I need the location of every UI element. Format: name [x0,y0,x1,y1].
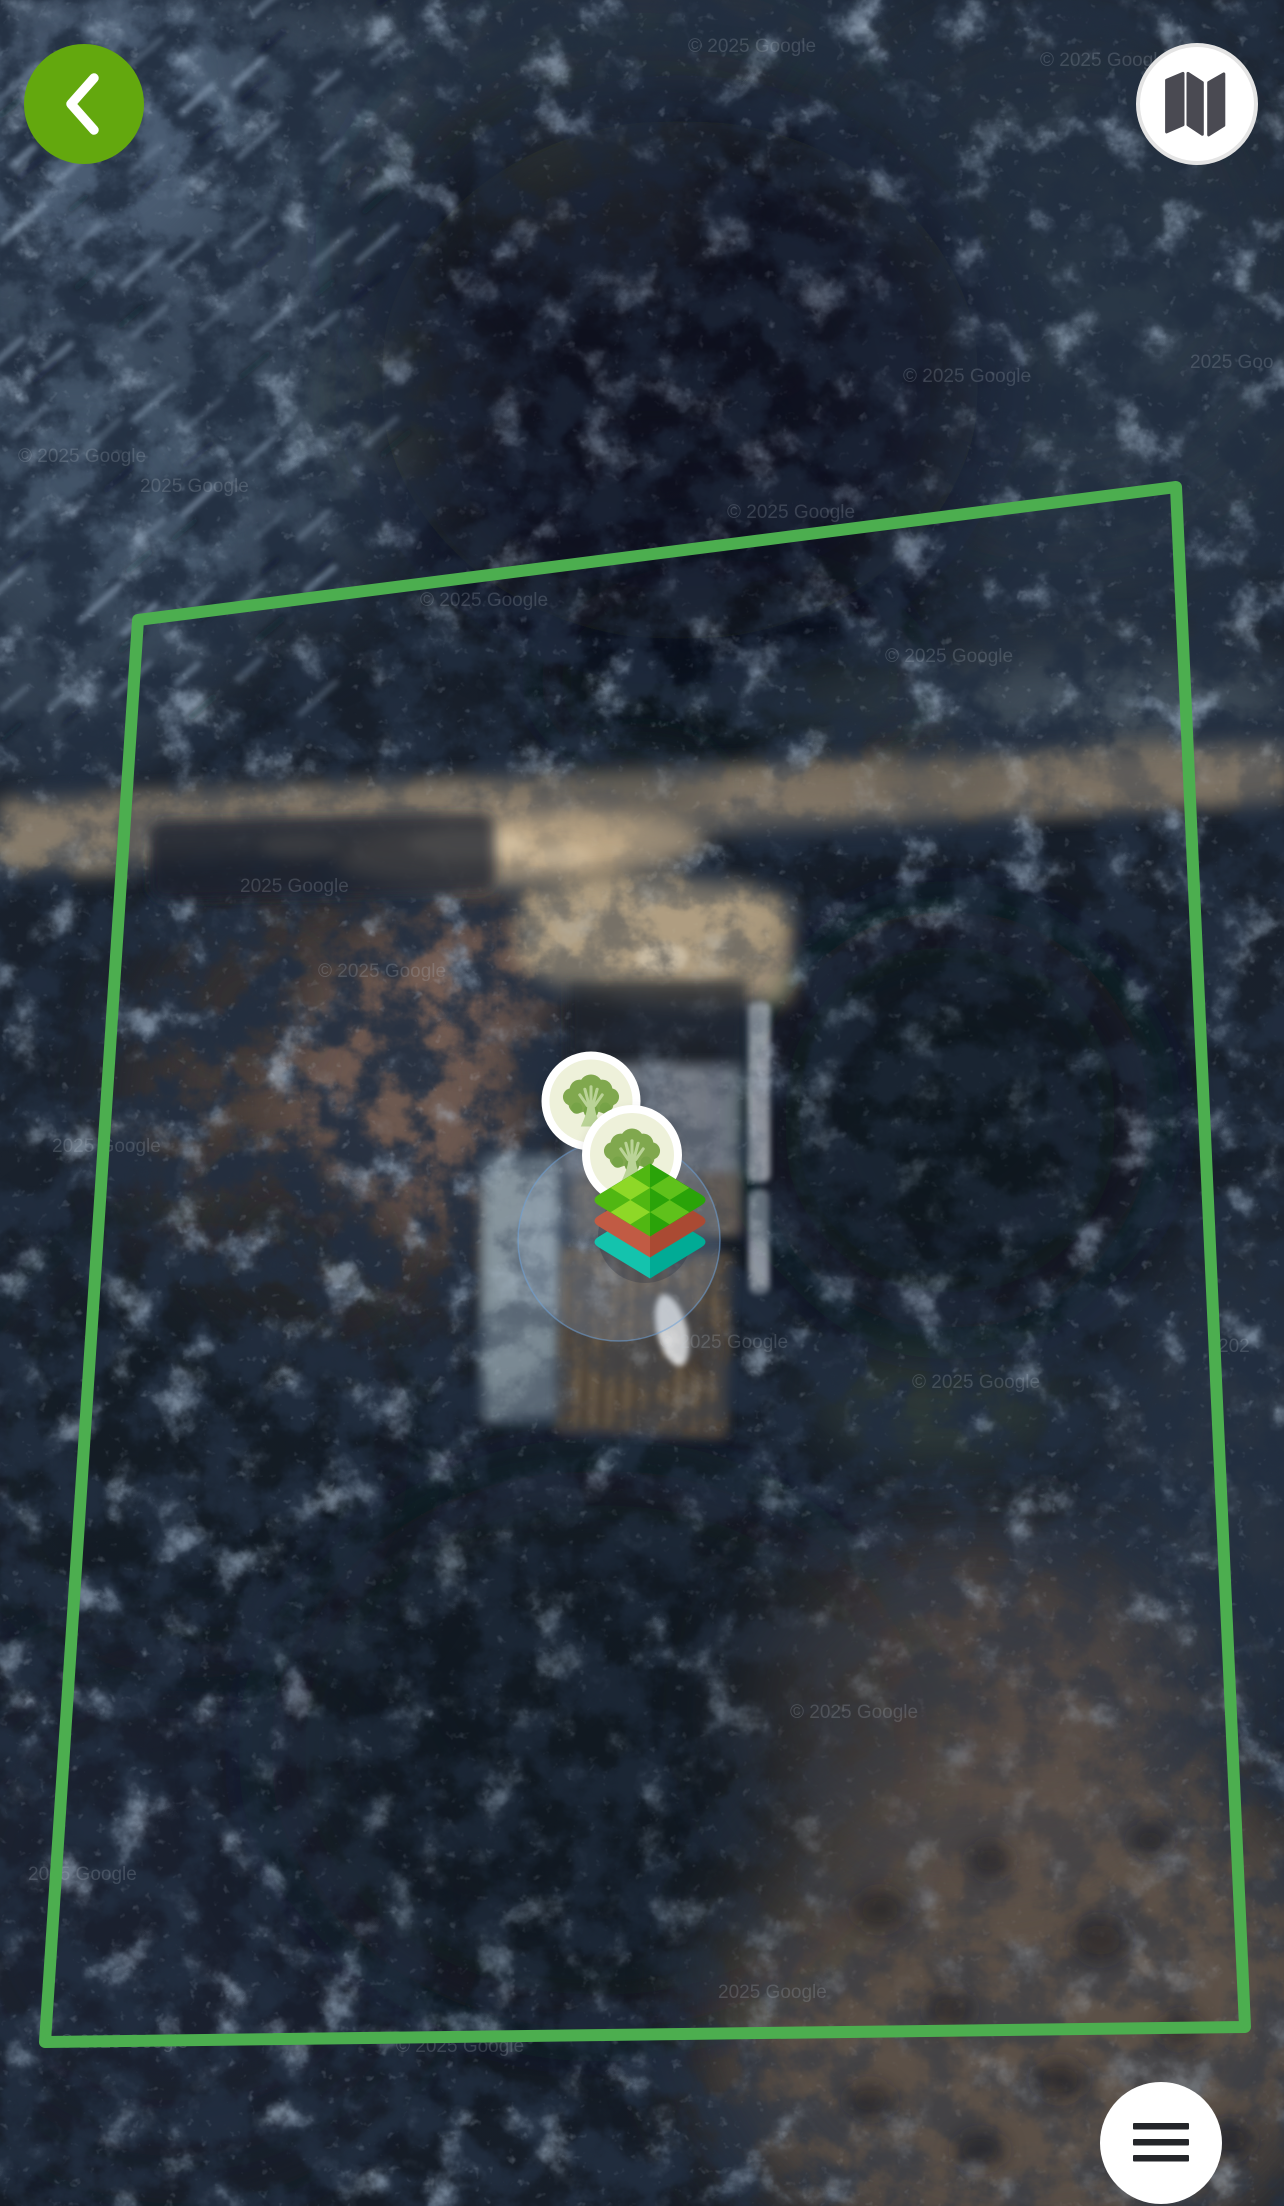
svg-text:2025 Goo: 2025 Goo [1190,352,1273,373]
svg-text:© 2025 Google: © 2025 Google [688,36,816,57]
svg-text:© 2025 Google: © 2025 Google [420,590,548,611]
svg-text:© 2025 Google: © 2025 Google [903,366,1031,387]
svg-text:© 2025 Google: © 2025 Google [885,646,1013,667]
svg-text:© 2025 Google: © 2025 Google [727,502,855,523]
svg-text:© 2025 Google: © 2025 Google [18,446,146,467]
svg-text:2025 Google: 2025 Google [718,1982,827,2003]
svg-text:2025 Google: 2025 Google [28,1864,137,1885]
svg-text:2025 Google: 2025 Google [140,476,249,497]
svg-text:© 2025 Google: © 2025 Google [912,1372,1040,1393]
svg-text:202: 202 [1218,1336,1250,1357]
svg-text:© 2025 Google: © 2025 Google [318,961,446,982]
svg-text:© 2025 Google: © 2025 Google [790,1702,918,1723]
svg-text:© 2025 Google: © 2025 Google [660,1332,788,1353]
svg-text:2025 Google: 2025 Google [240,876,349,897]
